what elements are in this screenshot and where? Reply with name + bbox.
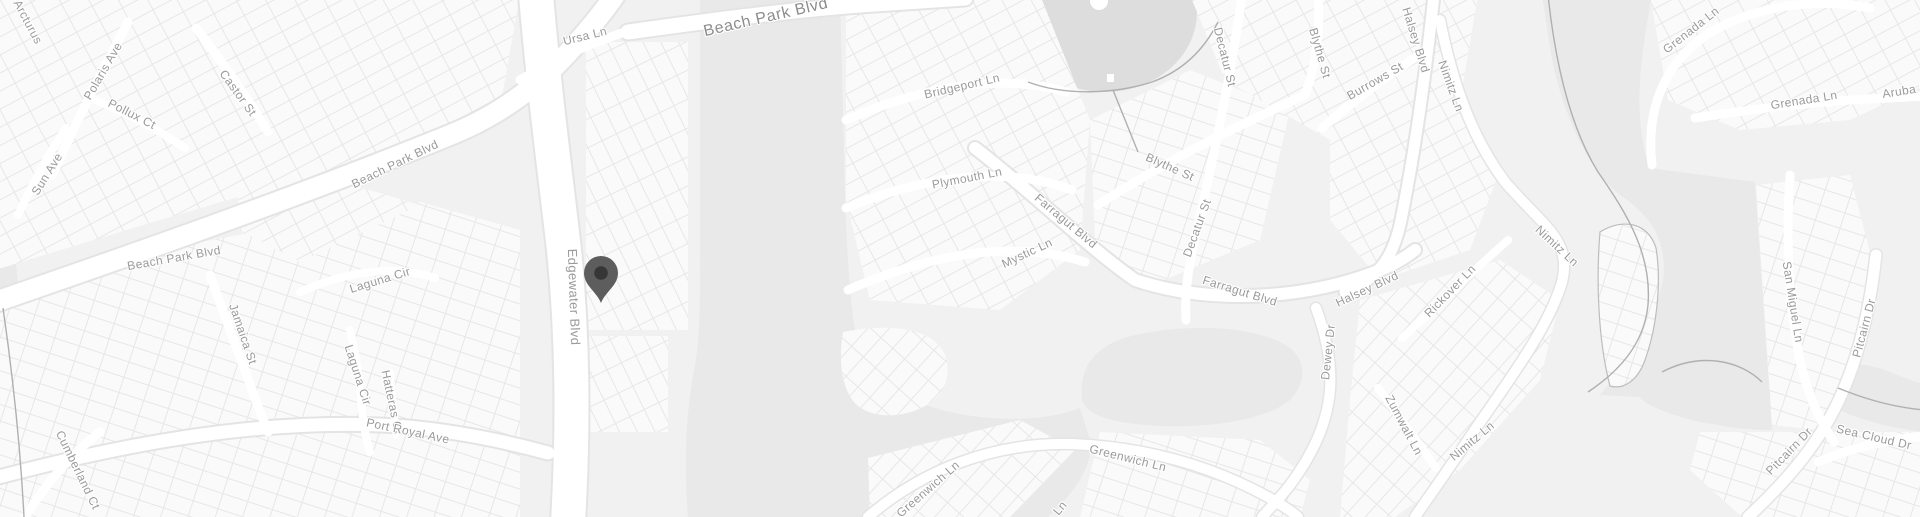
map-canvas[interactable]: ArcturusPolaris AvePollux CtCastor StSun… <box>0 0 1920 517</box>
pin-hole <box>594 266 608 280</box>
map-pin[interactable] <box>578 250 624 306</box>
map-graphics <box>0 0 1920 517</box>
